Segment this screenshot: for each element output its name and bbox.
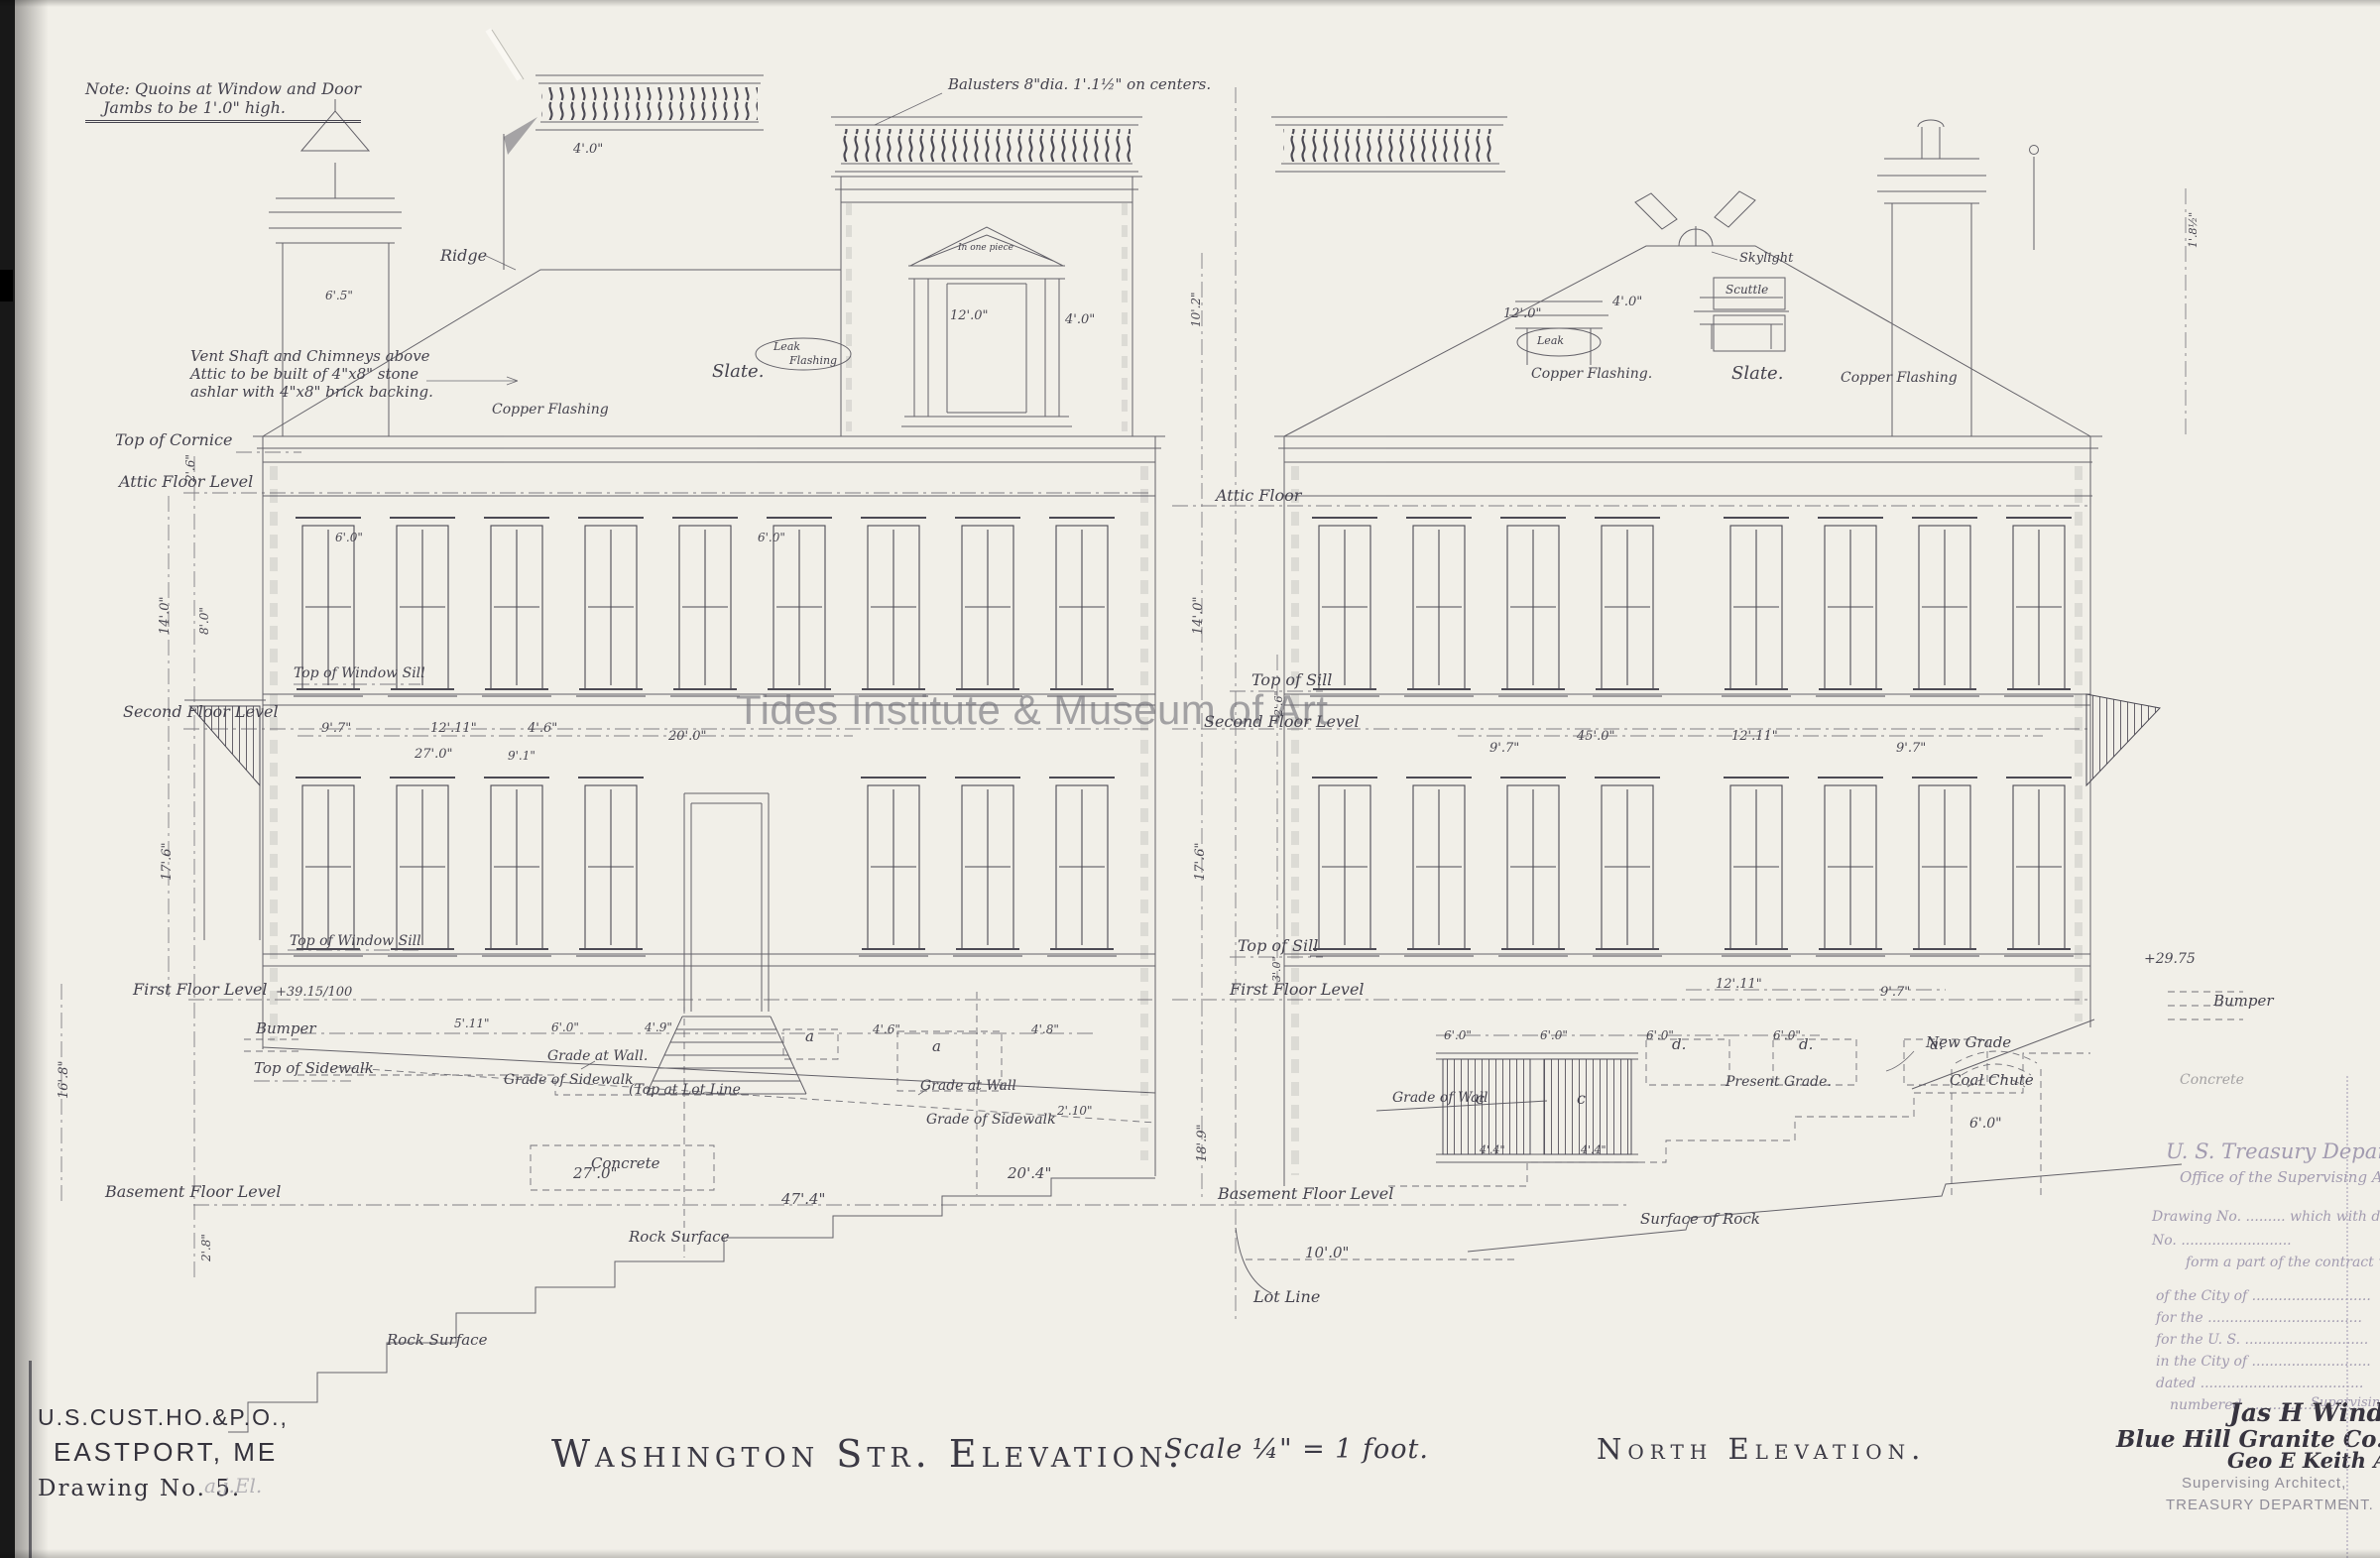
top-of-window-sill-label: Top of Window Sill (294, 666, 425, 681)
annotation-label: 9'.7" (321, 722, 351, 736)
building-outlines (184, 75, 2182, 1432)
annotation-label: c (1577, 1091, 1586, 1108)
annotation-label: for the U. S. ..........................… (2156, 1333, 2368, 1348)
annotation-label: 8'.0" (198, 607, 211, 635)
annotation-label: 4'.8" (1031, 1023, 1059, 1036)
top-of-sidewalk-label: Top of Sidewalk (254, 1061, 374, 1077)
annotation-label: c (1476, 1091, 1485, 1108)
annotation-label: 6'.0" (1646, 1029, 1674, 1042)
stamp-border (2346, 1076, 2348, 1558)
rock-surface-label: Rock Surface (629, 1230, 729, 1246)
basement-floor-level-label: Basement Floor Level (105, 1184, 281, 1201)
annotation-label: 4'.9" (645, 1021, 672, 1034)
annotation-label: 6'.0" (1773, 1029, 1801, 1042)
annotation-label: 4'.6" (873, 1023, 900, 1036)
annotation-label: 10'.0" (1305, 1246, 1349, 1261)
annotation-label: 4'.0" (1612, 296, 1642, 309)
annotation-label: 6'.0" (1444, 1029, 1472, 1042)
balustrade (1283, 129, 1497, 162)
annotation-label: 45'.0" (1577, 730, 1615, 744)
annotation-label: 6'.0" (551, 1021, 579, 1034)
annotation-label: 2'.8" (200, 1234, 213, 1261)
annotation-label: 47'.4" (781, 1192, 825, 1208)
annotation-label: 4'.4" (1480, 1144, 1505, 1156)
slate-label: Slate. (712, 363, 764, 382)
annotation-label: 12'.11" (430, 722, 477, 736)
scale-caption: Scale ¼" = 1 foot. (1164, 1434, 1429, 1465)
annotation-label: Flashing (789, 355, 837, 367)
note-line: ashlar with 4"x8" brick backing. (190, 383, 433, 401)
annotation-label: +29.75 (2144, 952, 2196, 967)
supervising-architect-label: Supervising Architect, (2182, 1476, 2346, 1492)
copper-flashing-label: Copper Flashing (492, 403, 609, 418)
annotation-label: 20'.4" (1008, 1166, 1051, 1182)
vent-shaft-note: Vent Shaft and Chimneys above Attic to b… (190, 347, 433, 401)
annotation-label: 9'.7" (1896, 742, 1926, 756)
annotation-label: 27'.0" (415, 748, 453, 762)
porch-roof (2086, 694, 2160, 785)
annotation-label: a (805, 1029, 814, 1045)
scuttle-label: Scuttle (1725, 284, 1768, 297)
annotation-label: dated ..................................… (2156, 1377, 2363, 1391)
annotation-label: 14'.0" (159, 597, 173, 636)
annotation-label: 9'.7" (1489, 742, 1519, 756)
architectural-drawing-sheet: Tides Institute & Museum of Art Note: Qu… (0, 0, 2380, 1558)
project-title: U.S.CUST.HO.&P.O., (38, 1404, 289, 1431)
top-of-sill-label: Top of Sill (1238, 938, 1318, 955)
annotation-label: a (932, 1039, 941, 1055)
treasury-department-label: TREASURY DEPARTMENT. (2166, 1498, 2374, 1513)
north-elevation-caption: North Elevation. (1597, 1432, 1926, 1466)
annotation-label: form a part of the contract with (2186, 1256, 2380, 1270)
annotation-label: 6'.0" (1540, 1029, 1568, 1042)
annotation-label: In one piece (958, 244, 1013, 253)
annotation-label: 1'.8½" (2188, 212, 2200, 248)
note-line: Note: Quoins at Window and Door (85, 79, 361, 98)
annotation-label: 16'.8" (58, 1061, 71, 1100)
ridge-label: Ridge (440, 248, 487, 265)
first-floor-level-label: First Floor Level (1230, 982, 1365, 999)
annotation-label: 20'.0" (668, 730, 707, 744)
note-line: Jambs to be 1'.0" high. (85, 98, 361, 123)
annotation-label: 2'.10" (1057, 1105, 1093, 1118)
elevation-drawing (0, 0, 2380, 1558)
scan-edge-shadow (15, 0, 49, 1558)
annotation-label: 12'.11" (1731, 730, 1778, 744)
annotation-label: Grade of Wall (1392, 1091, 1487, 1106)
copper-flashing-label: Copper Flashing (1841, 371, 1958, 386)
annotation-label: 17'.6" (1194, 843, 1208, 882)
skylight-label: Skylight (1739, 252, 1793, 266)
coal-chute-label: Coal Chute (1950, 1073, 2034, 1089)
annotation-label: 3'.0" (1271, 956, 1283, 982)
annotation-label: d. (1672, 1037, 1686, 1053)
annotation-label: 4'.0" (1065, 313, 1095, 327)
annotation-label: 2'.6" (1273, 690, 1285, 716)
fold-line (29, 1361, 32, 1558)
attic-floor-label: Attic Floor (1216, 488, 1301, 505)
annotation-label: 9'.1" (508, 750, 535, 763)
pencil-initials: a.j.El. (204, 1474, 262, 1498)
basement-window (1544, 1059, 1631, 1154)
annotation-label: 17'.6" (161, 843, 175, 882)
annotation-label: 2'.6" (184, 454, 197, 482)
annotation-label: 18'.9" (1196, 1125, 1210, 1163)
annotation-label: (Top at Lot Line (629, 1083, 741, 1098)
annotation-label: 4'.6" (528, 722, 557, 736)
copper-flashing-label: Copper Flashing. (1531, 367, 1652, 382)
bumper-label: Bumper (2213, 994, 2274, 1010)
basement-window (1443, 1059, 1530, 1154)
annotation-label: for the ................................… (2156, 1311, 2362, 1326)
annotation-label: a. (1930, 1037, 1944, 1053)
annotation-label: Office of the Supervising Architect (2180, 1170, 2380, 1186)
scan-shadow (0, 1549, 2380, 1558)
scan-shadow (0, 0, 2380, 7)
balustrade (843, 129, 1130, 162)
flag-finial (504, 117, 537, 155)
rock-surface-label: Rock Surface (387, 1333, 487, 1349)
annotation-label: 5'.11" (454, 1018, 490, 1030)
scratch-artifact (488, 30, 524, 79)
annotation-label: Geo E Keith Asst (2227, 1450, 2380, 1472)
note-line: Vent Shaft and Chimneys above (190, 347, 433, 365)
annotation-label: 6'.5" (325, 290, 353, 302)
grade-lines (244, 992, 2243, 1259)
annotation-label: 12'.0" (950, 309, 989, 323)
annotation-label: Leak (773, 341, 800, 353)
first-floor-level-label: First Floor Level (133, 982, 268, 999)
windows (294, 518, 2074, 956)
top-of-cornice-label: Top of Cornice (115, 432, 232, 449)
annotation-label: 6'.0" (1969, 1117, 2002, 1132)
slate-label: Slate. (1731, 365, 1783, 384)
balustrade (541, 87, 758, 120)
annotation-label: 9'.7" (1880, 986, 1910, 1000)
second-floor-level-label: Second Floor Level (123, 704, 279, 721)
annotation-label: Leak (1537, 335, 1564, 347)
leader-lines (426, 93, 1914, 1095)
annotation-label: Grade of Sidewalk (926, 1113, 1056, 1128)
annotation-label: 6'.0" (758, 532, 785, 544)
quoins-note: Note: Quoins at Window and Door Jambs to… (85, 79, 361, 123)
signature-supervising-architect: Jas H Windrim (2229, 1400, 2380, 1426)
scan-edge (0, 0, 15, 1558)
annotation-label: 14'.0" (1192, 597, 1206, 636)
annotation-label: Grade at Wall (920, 1079, 1016, 1094)
annotation-label: 27'.0" (573, 1166, 617, 1182)
scan-blemish (0, 270, 13, 301)
annotation-label: No. ......................... (2152, 1234, 2292, 1249)
annotation-label: Grade of Sidewalk (504, 1073, 634, 1088)
lot-line-label: Lot Line (1253, 1289, 1320, 1306)
annotation-label: 6'.0" (335, 532, 363, 544)
annotation-label: 10'.2" (1190, 292, 1203, 327)
top-of-sill-label: Top of Sill (1251, 672, 1332, 689)
annotation-label: 12'.0" (1503, 307, 1542, 321)
concrete-label: Concrete (2180, 1073, 2244, 1088)
annotation-label: 4'.4" (1581, 1144, 1606, 1156)
note-line: Attic to be built of 4"x8" stone (190, 365, 433, 383)
annotation-label: in the City of .........................… (2156, 1355, 2371, 1370)
annotation-label: 12'.11" (1716, 978, 1762, 992)
washington-elevation-caption: Washington Str. Elevation. (551, 1432, 1184, 1476)
second-floor-level-label: Second Floor Level (1204, 714, 1360, 731)
basement-floor-level-label: Basement Floor Level (1218, 1186, 1393, 1203)
project-location: EASTPORT, ME (54, 1437, 289, 1468)
balusters-note: Balusters 8"dia. 1'.1½" on centers. (948, 77, 1211, 93)
annotation-label: Grade at Wall. (547, 1049, 648, 1064)
annotation-label: d. (1799, 1037, 1813, 1053)
first-floor-elevation-value: +39.15/100 (276, 986, 352, 1000)
top-of-window-sill-label: Top of Window Sill (290, 934, 421, 949)
annotation-label: of the City of .........................… (2156, 1289, 2371, 1304)
surface-of-rock-label: Surface of Rock (1640, 1212, 1760, 1228)
present-grade-label: Present Grade. (1725, 1075, 1832, 1090)
annotation-label: 4'.0" (573, 143, 603, 157)
bumper-label: Bumper (256, 1021, 316, 1037)
